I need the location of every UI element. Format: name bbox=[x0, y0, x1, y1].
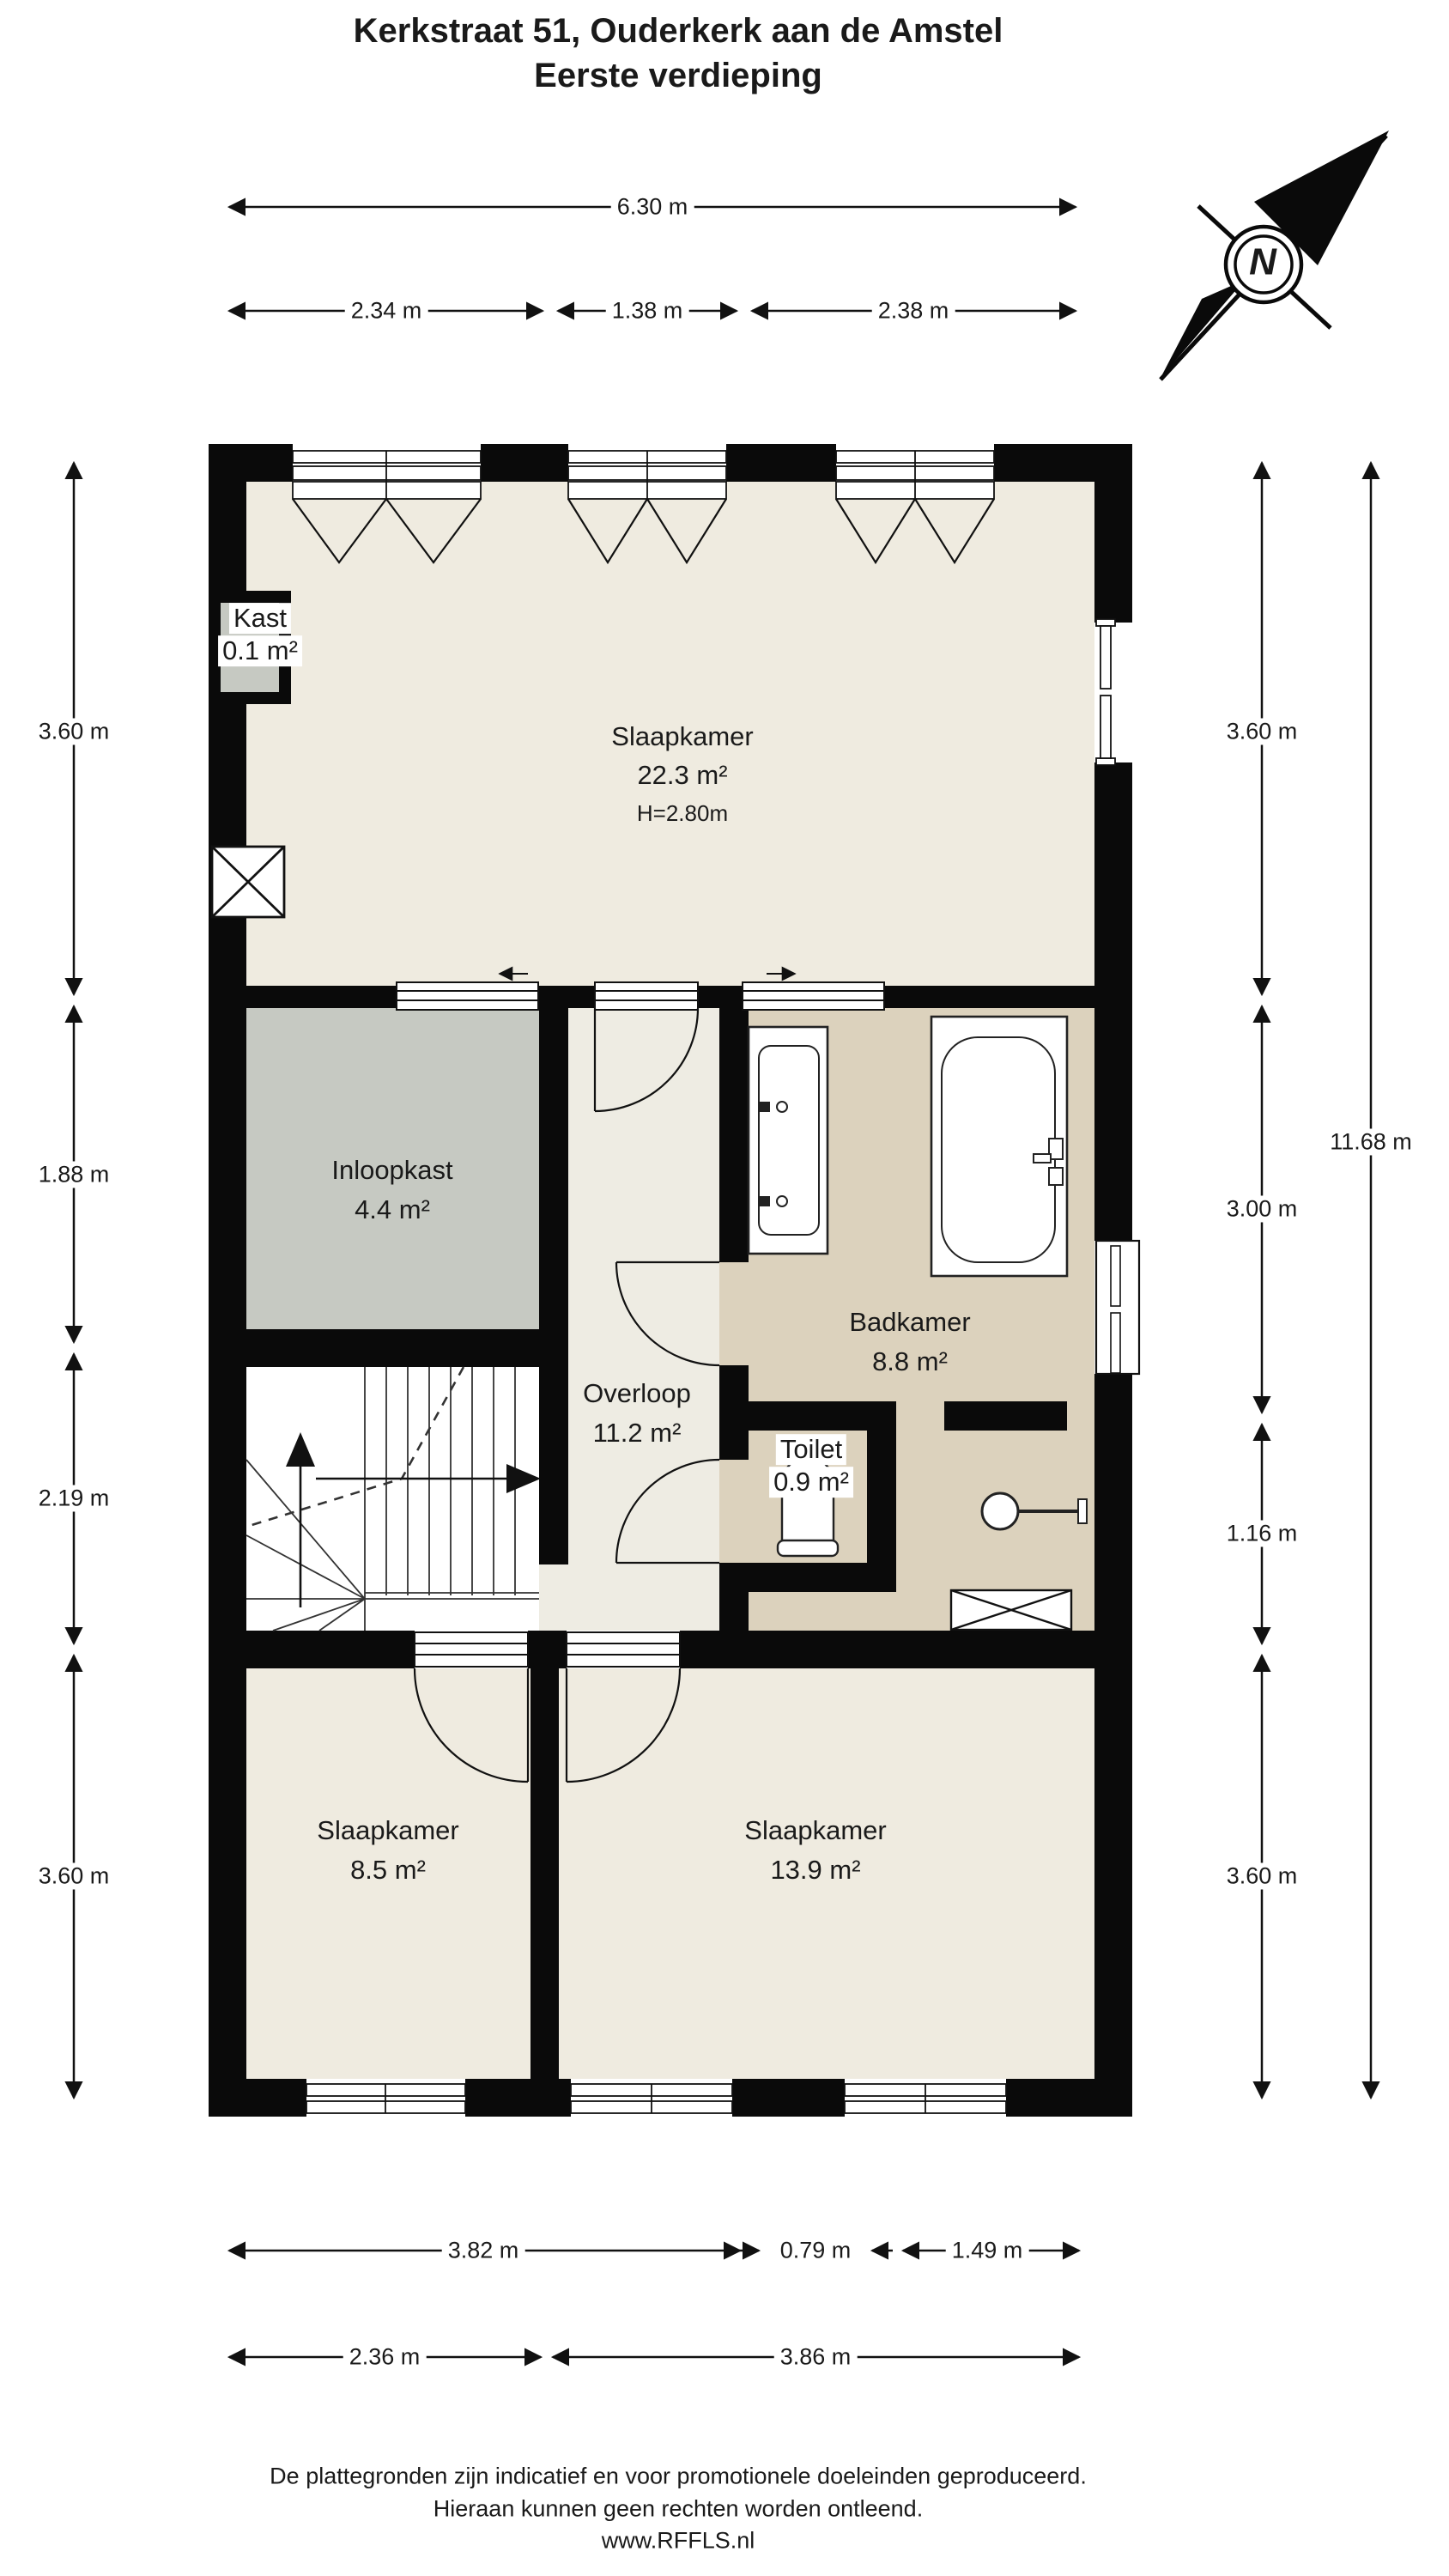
dim-left-4: 3.60 m bbox=[33, 1862, 116, 1889]
dim-bottom1-1: 3.82 m bbox=[442, 2237, 525, 2263]
room-kast-name: Kast bbox=[229, 603, 291, 634]
room-overloop-name: Overloop bbox=[583, 1378, 691, 1409]
window-right-badkamer bbox=[1096, 1241, 1139, 1374]
dim-right-1: 3.60 m bbox=[1221, 718, 1304, 744]
door-band-slaapkamer-2 bbox=[415, 1632, 528, 1667]
compass-n-label: N bbox=[1249, 241, 1276, 285]
room-toilet-name: Toilet bbox=[776, 1434, 846, 1465]
washbasin bbox=[749, 1027, 828, 1254]
room-kast-area: 0.1 m² bbox=[218, 635, 302, 666]
window-right-slaapkamer bbox=[1094, 619, 1132, 765]
footer-disclaimer-1: De plattegronden zijn indicatief en voor… bbox=[270, 2463, 1087, 2489]
room-inloopkast-area: 4.4 m² bbox=[355, 1194, 430, 1225]
dim-right-4: 3.60 m bbox=[1221, 1862, 1304, 1889]
window-bottom-2 bbox=[571, 2079, 732, 2117]
dim-right-total: 11.68 m bbox=[1324, 1128, 1418, 1155]
dim-top-total: 6.30 m bbox=[611, 193, 694, 220]
room-toilet-area: 0.9 m² bbox=[769, 1467, 853, 1498]
bathtub bbox=[931, 1017, 1067, 1276]
floorplan-drawing bbox=[0, 0, 1449, 2576]
room-slaapkamer1-name: Slaapkamer bbox=[611, 721, 753, 752]
compass-south-needle bbox=[1161, 280, 1245, 378]
dim-bottom1-3: 1.49 m bbox=[946, 2237, 1029, 2263]
page-title: Kerkstraat 51, Ouderkerk aan de Amstel bbox=[354, 11, 1003, 51]
room-overloop-area: 11.2 m² bbox=[593, 1418, 682, 1449]
dim-top-3: 2.38 m bbox=[872, 297, 955, 324]
window-bottom-3 bbox=[845, 2079, 1006, 2117]
room-slaapkamer1-area: 22.3 m² bbox=[637, 760, 727, 791]
dim-bottom2-1: 2.36 m bbox=[343, 2343, 427, 2370]
room-badkamer-name: Badkamer bbox=[849, 1307, 970, 1338]
page-subtitle: Eerste verdieping bbox=[534, 56, 822, 95]
dim-top-2: 1.38 m bbox=[606, 297, 689, 324]
footer-disclaimer-2: Hieraan kunnen geen rechten worden ontle… bbox=[433, 2495, 923, 2522]
room-slaapkamer2-area: 8.5 m² bbox=[350, 1855, 426, 1886]
door-band-slaapkamer-3 bbox=[567, 1632, 680, 1667]
sliding-door-inloopkast bbox=[397, 982, 538, 1010]
door-band-overloop bbox=[595, 982, 698, 1010]
dim-bottom1-2: 0.79 m bbox=[774, 2237, 858, 2263]
shaft-right-icon bbox=[951, 1590, 1071, 1630]
floor-stairs bbox=[246, 1367, 539, 1631]
dim-left-3: 2.19 m bbox=[33, 1485, 116, 1511]
dim-left-2: 1.88 m bbox=[33, 1161, 116, 1188]
footer-website: www.RFFLS.nl bbox=[602, 2527, 755, 2554]
room-inloopkast-name: Inloopkast bbox=[331, 1155, 452, 1186]
window-bottom-1 bbox=[306, 2079, 465, 2117]
room-slaapkamer3-name: Slaapkamer bbox=[744, 1815, 886, 1846]
dim-top-1: 2.34 m bbox=[345, 297, 428, 324]
room-badkamer-area: 8.8 m² bbox=[872, 1346, 948, 1377]
dim-right-2: 3.00 m bbox=[1221, 1195, 1304, 1222]
room-slaapkamer1-height: H=2.80m bbox=[637, 801, 728, 827]
room-slaapkamer3-area: 13.9 m² bbox=[770, 1855, 860, 1886]
room-slaapkamer2-name: Slaapkamer bbox=[317, 1815, 458, 1846]
dim-left-1: 3.60 m bbox=[33, 718, 116, 744]
shaft-left-icon bbox=[212, 847, 284, 917]
sliding-door-badkamer bbox=[743, 982, 884, 1010]
floorplan-page: Kerkstraat 51, Ouderkerk aan de Amstel E… bbox=[0, 0, 1449, 2576]
dim-right-3: 1.16 m bbox=[1221, 1520, 1304, 1546]
dim-bottom2-2: 3.86 m bbox=[774, 2343, 858, 2370]
